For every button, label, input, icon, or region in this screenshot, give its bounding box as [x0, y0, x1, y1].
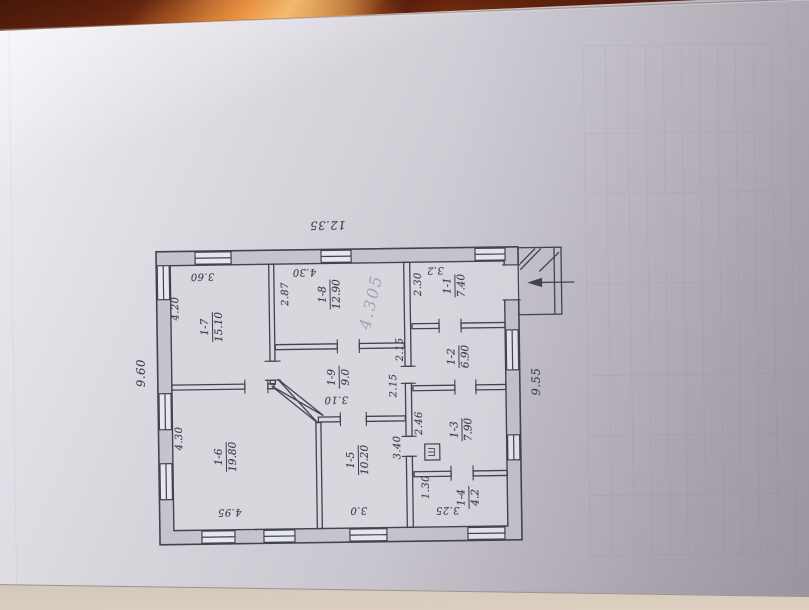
room-number: 1-9	[327, 366, 340, 389]
shaft-symbol-letter: Ш	[428, 447, 438, 457]
room-area: 19.80	[226, 442, 238, 472]
dimension-label: 4.30	[292, 266, 316, 277]
room-label-1-9: 1-9 9.0	[327, 366, 351, 389]
dimension-label: 3.10	[324, 394, 348, 405]
room-label-1-4: 1-4 4.2	[456, 486, 480, 509]
room-number: 1-1	[442, 274, 455, 298]
room-number: 1-6	[214, 442, 227, 472]
room-label-1-3: 1-3 7.90	[449, 418, 473, 442]
dimension-label: 3.25	[436, 504, 460, 515]
room-area: 15.10	[212, 312, 224, 342]
room-area: 10.20	[358, 445, 370, 475]
room-label-1-2: 1-2 6.90	[446, 345, 470, 369]
room-label-1-1: 1-1 7.40	[442, 274, 466, 298]
photo-of-floor-plan: 12.35 9.60 9.55 1-1 7.40 1-2 6.90 1-3 7.…	[0, 0, 809, 610]
room-number: 1-3	[449, 418, 462, 442]
entrance-arrow-icon	[529, 278, 574, 286]
room-number: 1-2	[446, 345, 459, 369]
dimension-label: 4.20	[170, 297, 181, 321]
room-number: 1-8	[317, 279, 330, 309]
room-number: 1-5	[346, 445, 359, 475]
dimension-label: 1.30	[421, 475, 432, 499]
room-area: 4.2	[469, 486, 481, 509]
room-area: 12.90	[330, 279, 342, 309]
dimension-label: 2.30	[413, 272, 424, 296]
dimension-label: 2.87	[280, 282, 291, 306]
room-label-1-8: 1-8 12.90	[317, 279, 341, 309]
dimension-label: 3.60	[190, 271, 214, 282]
room-number: 1-7	[200, 312, 213, 342]
room-label-1-5: 1-5 10.20	[346, 445, 370, 475]
paper-sheet: 12.35 9.60 9.55 1-1 7.40 1-2 6.90 1-3 7.…	[0, 0, 809, 610]
dimension-label: 2.46	[414, 411, 425, 435]
floor-plan-linework	[0, 0, 809, 610]
dimension-label: 3.2	[427, 264, 444, 275]
dimension-label: 2.15	[395, 337, 406, 361]
dimension-label: 3.40	[392, 435, 403, 459]
overall-dimension: 12.35	[310, 218, 346, 233]
room-area: 6.90	[459, 345, 471, 369]
dimension-label: 3.0	[350, 504, 367, 515]
overall-dimension: 9.60	[133, 359, 147, 387]
room-area: 7.40	[455, 274, 467, 298]
room-area: 9.0	[339, 366, 351, 389]
overall-dimension: 9.55	[529, 367, 543, 395]
room-label-1-7: 1-7 15.10	[200, 312, 224, 342]
dimension-label: 4.95	[218, 506, 242, 517]
dimension-label: 2.15	[388, 374, 399, 398]
floor-plan-drawing: 12.35 9.60 9.55 1-1 7.40 1-2 6.90 1-3 7.…	[0, 0, 809, 610]
ghost-title-block	[583, 43, 778, 556]
room-label-1-6: 1-6 19.80	[214, 442, 238, 472]
dimension-label: 4.30	[174, 427, 185, 451]
room-area: 7.90	[462, 418, 474, 442]
